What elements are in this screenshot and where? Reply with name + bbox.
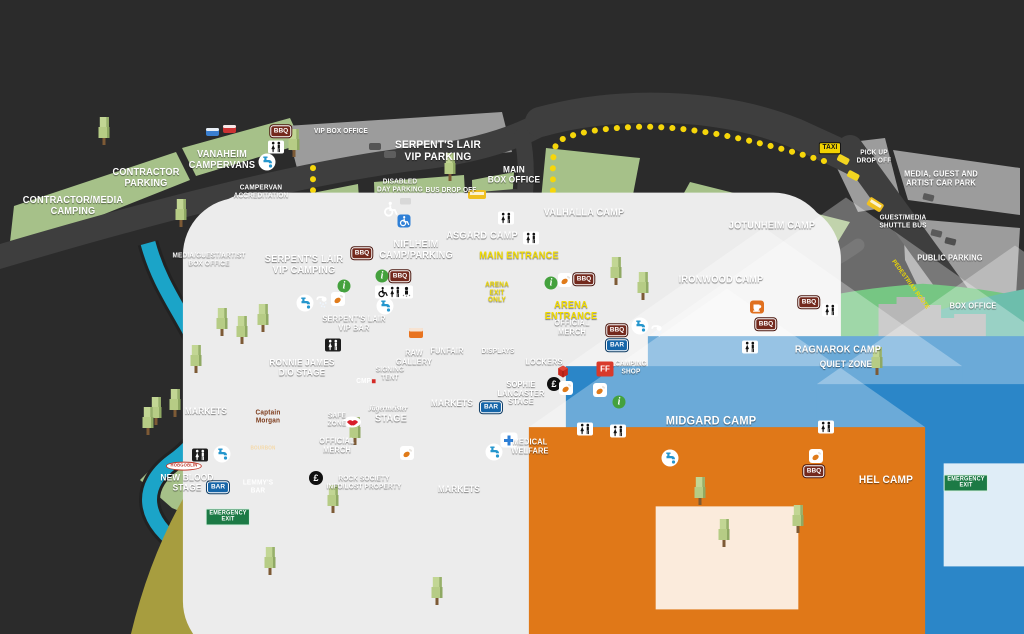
campervan-icon: [223, 125, 236, 133]
bus-icon: [468, 190, 486, 199]
car-icon: [384, 151, 396, 158]
car-icon: [400, 198, 411, 205]
basemap: [0, 0, 1024, 634]
festival-map: BBQBBQBBQiiBBQiBBQBARBBQBBQFF£iBBQBAR£BA…: [0, 0, 1024, 634]
food-truck-icon: [409, 328, 423, 338]
campervan-icon: [206, 128, 219, 136]
car-icon: [369, 143, 381, 150]
